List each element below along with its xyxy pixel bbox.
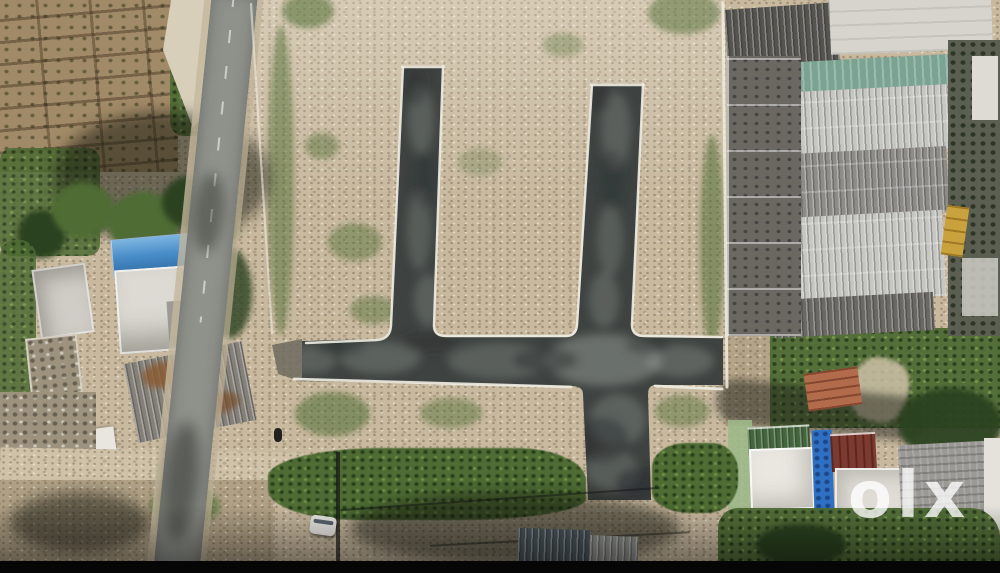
warehouse-roof-gray xyxy=(790,146,949,220)
weed-patch xyxy=(350,296,396,324)
olx-watermark: olx xyxy=(848,464,970,528)
weed-strip-left-wall xyxy=(268,25,294,335)
weed-strip-right-wall xyxy=(700,135,724,350)
road-tree-shadow xyxy=(190,171,228,254)
side-gap-trees xyxy=(948,40,1000,336)
terracotta-roof-house xyxy=(804,366,863,411)
weed-patch xyxy=(305,133,339,159)
white-wall-patch xyxy=(962,258,998,316)
ground-shadow xyxy=(10,492,150,552)
white-wall-patch xyxy=(972,56,998,120)
weed-patch xyxy=(328,223,382,261)
flat-roofs-strip xyxy=(727,56,801,336)
roof-dark-metal-bottom xyxy=(517,528,590,563)
weed-patch xyxy=(543,33,583,57)
palm-canopy xyxy=(52,182,114,238)
weed-patch-lower xyxy=(295,392,370,436)
utility-pole-line xyxy=(336,452,340,562)
motorbike xyxy=(274,428,282,442)
weed-patch-lower xyxy=(420,398,482,428)
tree-row-center-east xyxy=(652,443,738,513)
white-house xyxy=(31,263,94,340)
weed-patch-lower xyxy=(655,395,710,427)
warehouse-roof-silver-2 xyxy=(779,210,946,304)
letterbox-bar xyxy=(0,561,1000,573)
white-flat-roof-house xyxy=(749,447,815,511)
white-car xyxy=(309,514,337,536)
old-roof-house xyxy=(25,333,83,398)
aerial-photo: olx xyxy=(0,0,1000,573)
dark-tree-bottom xyxy=(756,524,846,566)
car-windshield xyxy=(313,519,333,526)
weed-patch xyxy=(458,148,502,176)
roof-gray-bottom xyxy=(590,535,639,563)
warehouse-roof-silver-1 xyxy=(795,84,950,156)
